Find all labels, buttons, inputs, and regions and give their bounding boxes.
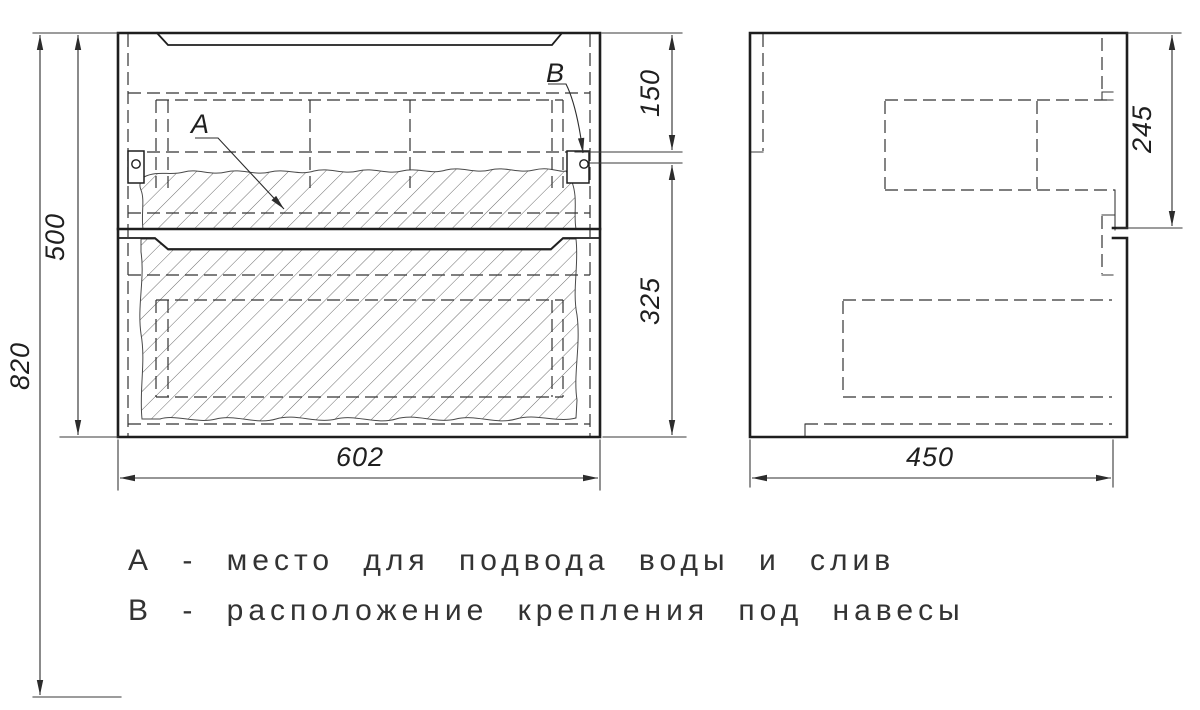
mounting-hole-left: [132, 160, 140, 168]
dim-500: 500: [40, 213, 70, 261]
dim-325: 325: [635, 277, 665, 325]
dim-150: 150: [635, 69, 665, 117]
callout-b-leader: [548, 84, 583, 153]
front-top-groove: [157, 33, 562, 45]
mounting-hole-right: [580, 160, 588, 168]
dim-245: 245: [1127, 105, 1157, 154]
side-hidden-lines: [763, 34, 1115, 424]
dim-820: 820: [5, 342, 35, 390]
hatch-area-top-drawer: [140, 169, 576, 229]
dimension-depth: 450: [750, 440, 1113, 487]
callout-a-label: А: [189, 109, 209, 139]
dim-602: 602: [336, 442, 384, 472]
dimension-carcass-height: 500: [40, 35, 118, 437]
note-b: В - расположение крепления под навесы: [128, 594, 965, 627]
side-outline: [750, 33, 1127, 437]
note-a: А - место для подвода воды и слив: [128, 544, 895, 577]
front-view: [118, 33, 600, 437]
dimension-overall-height: 820: [5, 33, 121, 697]
mounting-bracket-left: [128, 151, 144, 183]
side-detail-lines: [750, 92, 1115, 437]
front-middle-groove: [118, 238, 600, 249]
cabinet-drawing: 820 500 602 150 325 450 245 А: [0, 0, 1200, 710]
dimension-width: 602: [118, 440, 600, 490]
dimension-hanger-to-bottom: 325: [603, 165, 686, 437]
side-view: [750, 33, 1181, 437]
dim-450: 450: [906, 442, 954, 472]
hatch-area-bottom-drawer: [140, 239, 578, 421]
mounting-bracket-right: [567, 151, 589, 183]
technical-drawing-page: 820 500 602 150 325 450 245 А: [0, 0, 1200, 710]
dimension-hanger-offset: 150: [575, 33, 682, 163]
notes: А - место для подвода воды и слив В - ра…: [128, 544, 965, 627]
